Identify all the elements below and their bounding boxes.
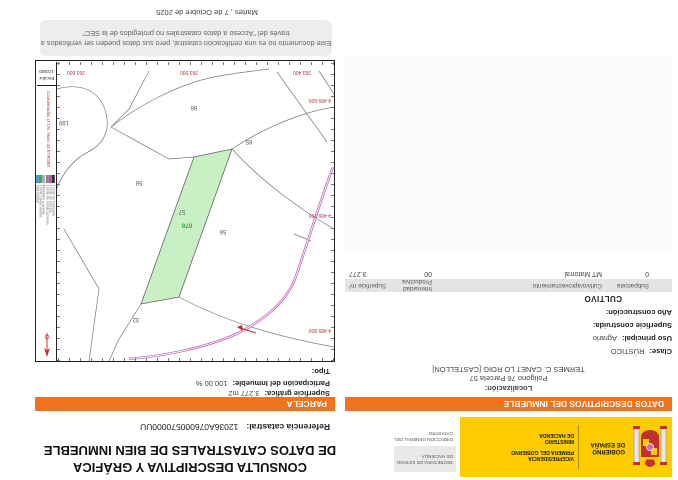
spain-coat-of-arms-icon xyxy=(628,421,672,473)
tipo-field: Tipo: xyxy=(307,367,330,376)
cadastral-reference-value: 12036A076000570000UU xyxy=(140,422,238,432)
col-superficie: Superficie m² xyxy=(345,282,387,289)
parcel-label: 32 xyxy=(133,316,140,322)
y-coordinate-label: 4.489.700 xyxy=(309,212,331,218)
y-coordinate-label: 4.489.800 xyxy=(309,327,331,333)
cadastral-map: 199 86 85 58 57 076 56 32 263.400 263.50… xyxy=(35,60,335,362)
cultivo-table-row: 0 MT Matorral 00 3.277 xyxy=(345,268,672,279)
section-banner-datos-descriptivos: DATOS DESCRIPTIVOS DEL INMUEBLE xyxy=(345,397,672,411)
document-title: CONSULTA DESCRIPTIVA Y GRÁFICA DE DATOS … xyxy=(40,442,340,476)
x-coordinate-label: 263.600 xyxy=(67,69,85,75)
map-ticks-top xyxy=(57,358,334,361)
logo-divider xyxy=(578,425,579,469)
parcel-label: 58 xyxy=(136,179,143,185)
x-coordinate-label: 263.500 xyxy=(180,69,198,75)
participacion-field: Participación del Inmueble:100.00 % xyxy=(196,379,330,388)
localizacion-label: Localización: xyxy=(485,384,533,393)
col-cultivo: Cultivo/aprovechamiento xyxy=(432,282,602,289)
direccion-general-catastro-label: DIRECCIÓN GENERAL DEL CATASTRO xyxy=(394,431,456,442)
document-date: Martes , 7 de Octubre de 2025 xyxy=(82,8,332,17)
y-coordinate-label: 4.489.600 xyxy=(309,97,331,103)
x-coordinate-label: 263.400 xyxy=(293,69,311,75)
cadastral-reference-label: Referencia catastral: xyxy=(246,422,330,432)
cultivo-section-title: CULTIVO xyxy=(584,294,622,303)
screenshot-canvas: GOBIERNO DE ESPAÑA VICEPRESIDENCIA PRIME… xyxy=(0,0,678,480)
uso-principal-field: Uso principal:Agrario xyxy=(593,334,672,343)
cultivo-table-header-row: Subparcela Cultivo/aprovechamiento Inten… xyxy=(345,279,672,292)
utm-coordinates-note: Coordenadas U.T.M. Huso 31 ETRS89 xyxy=(46,91,51,171)
parcel-label: 199 xyxy=(59,119,69,125)
secretaria-estado-box: SECRETARÍA DE ESTADO DE HACIENDA xyxy=(394,446,456,472)
map-drawing-area: 199 86 85 58 57 076 56 32 263.400 263.50… xyxy=(57,62,334,361)
anio-construccion-field: Año construcción: xyxy=(601,308,672,317)
ministry-labels: VICEPRESIDENCIA PRIMERA DEL GOBIERNO MIN… xyxy=(511,433,574,462)
gobierno-de-espana-label: GOBIERNO DE ESPAÑA xyxy=(583,440,625,454)
superficie-construida-field: Superficie construida: xyxy=(588,321,672,330)
cultivo-table: Subparcela Cultivo/aprovechamiento Inten… xyxy=(345,268,672,292)
disclaimer-box: Este documento no es una certificación c… xyxy=(40,20,332,56)
superficie-grafica-field: Superficie gráfica:3.277 m2 xyxy=(228,389,330,398)
map-ticks-right xyxy=(57,62,60,361)
localizacion-line2: TERMES C. CANET LO ROIG [CASTELLÓN] xyxy=(345,365,672,375)
map-ticks-left xyxy=(331,62,334,361)
parcel-label: 86 xyxy=(191,104,198,110)
cadastral-reference: Referencia catastral:12036A076000570000U… xyxy=(50,422,330,432)
clase-field: Clase:RÚSTICO xyxy=(611,347,672,356)
government-logo-box: GOBIERNO DE ESPAÑA VICEPRESIDENCIA PRIME… xyxy=(460,417,672,477)
col-intensidad: Intensidad Productiva xyxy=(387,279,432,293)
parcel-label-highlighted: 57 xyxy=(179,208,186,214)
localizacion-line1: Polígono 76 Parcela 57 xyxy=(345,374,672,384)
map-legend-strip: Límite de manzana Límite de parcela Lími… xyxy=(37,62,57,361)
section-banner-parcela: PARCELA xyxy=(35,397,335,411)
map-legend-items: Límite de manzana Límite de parcela Lími… xyxy=(36,175,55,325)
parcel-label: 85 xyxy=(246,138,253,144)
col-subparcela: Subparcela xyxy=(602,282,672,289)
north-arrow-icon xyxy=(42,331,52,357)
empty-panel xyxy=(345,55,672,250)
localizacion-block: Localización: Polígono 76 Parcela 57 TER… xyxy=(345,365,672,394)
polygon-code-label: 076 xyxy=(182,222,193,229)
map-ticks-bottom xyxy=(57,62,334,65)
cadastral-document-page: GOBIERNO DE ESPAÑA VICEPRESIDENCIA PRIME… xyxy=(0,0,678,480)
scale-box: Escala: 1/2000 xyxy=(37,62,56,86)
parcel-label: 56 xyxy=(220,228,227,234)
